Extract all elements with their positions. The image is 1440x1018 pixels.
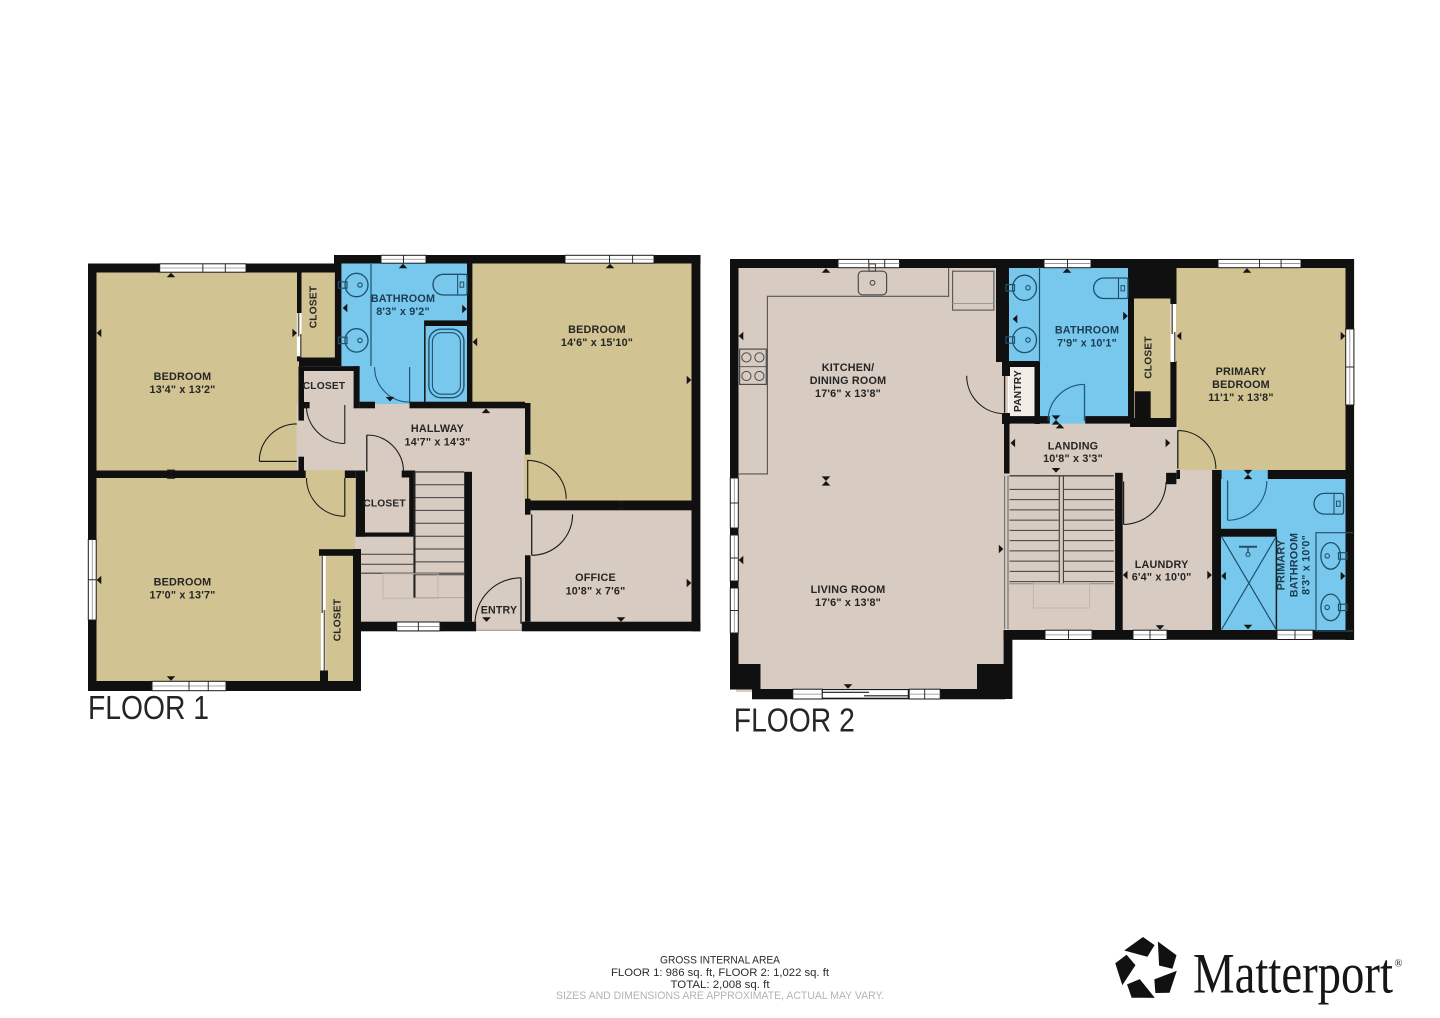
svg-text:17'0" x 13'7": 17'0" x 13'7" xyxy=(149,590,215,602)
svg-text:BEDROOM: BEDROOM xyxy=(154,577,212,589)
svg-text:DINING ROOM: DINING ROOM xyxy=(810,375,887,387)
svg-text:Matterport: Matterport xyxy=(1193,943,1393,1006)
svg-text:ENTRY: ENTRY xyxy=(481,605,518,617)
svg-text:10'8" x 7'6": 10'8" x 7'6" xyxy=(566,586,626,598)
svg-text:BEDROOM: BEDROOM xyxy=(1212,379,1270,391)
svg-text:GROSS INTERNAL AREA: GROSS INTERNAL AREA xyxy=(660,955,780,967)
svg-text:CLOSET: CLOSET xyxy=(303,381,346,392)
svg-text:BATHROOM: BATHROOM xyxy=(1289,533,1301,597)
svg-text:17'6" x 13'8": 17'6" x 13'8" xyxy=(815,597,881,609)
svg-text:FLOOR 1: 986 sq. ft, FLOOR 2:: FLOOR 1: 986 sq. ft, FLOOR 2: 1,022 sq. … xyxy=(611,967,830,979)
svg-text:LAUNDRY: LAUNDRY xyxy=(1135,559,1189,571)
svg-text:PRIMARY: PRIMARY xyxy=(1276,539,1288,590)
svg-text:BATHROOM: BATHROOM xyxy=(1055,325,1119,337)
svg-text:CLOSET: CLOSET xyxy=(309,285,320,328)
svg-text:FLOOR 1: FLOOR 1 xyxy=(88,689,209,726)
svg-text:KITCHEN/: KITCHEN/ xyxy=(822,362,875,374)
svg-text:CLOSET: CLOSET xyxy=(332,598,343,641)
svg-text:7'9" x 10'1": 7'9" x 10'1" xyxy=(1057,338,1117,350)
svg-text:CLOSET: CLOSET xyxy=(363,499,406,510)
svg-text:11'1" x 13'8": 11'1" x 13'8" xyxy=(1208,392,1273,404)
svg-text:6'4" x 10'0": 6'4" x 10'0" xyxy=(1132,572,1192,584)
svg-text:CLOSET: CLOSET xyxy=(1143,336,1154,379)
svg-text:PANTRY: PANTRY xyxy=(1013,370,1024,412)
svg-text:8'3" x 9'2": 8'3" x 9'2" xyxy=(376,306,430,318)
svg-text:BEDROOM: BEDROOM xyxy=(154,371,212,383)
svg-text:13'4" x 13'2": 13'4" x 13'2" xyxy=(149,384,215,396)
svg-text:BEDROOM: BEDROOM xyxy=(568,324,626,336)
svg-text:17'6" x 13'8": 17'6" x 13'8" xyxy=(815,388,881,400)
svg-text:10'8" x 3'3": 10'8" x 3'3" xyxy=(1043,453,1103,465)
svg-text:BATHROOM: BATHROOM xyxy=(371,293,435,305)
svg-text:HALLWAY: HALLWAY xyxy=(411,423,465,435)
svg-text:LANDING: LANDING xyxy=(1048,441,1099,453)
svg-text:SIZES AND DIMENSIONS ARE APPRO: SIZES AND DIMENSIONS ARE APPROXIMATE, AC… xyxy=(556,990,884,1002)
svg-text:14'6" x 15'10": 14'6" x 15'10" xyxy=(561,337,633,349)
svg-text:FLOOR 2: FLOOR 2 xyxy=(734,702,855,739)
svg-text:®: ® xyxy=(1395,959,1403,970)
svg-text:OFFICE: OFFICE xyxy=(575,572,616,584)
svg-text:14'7" x 14'3": 14'7" x 14'3" xyxy=(404,437,470,449)
svg-text:PRIMARY: PRIMARY xyxy=(1216,366,1267,378)
svg-text:LIVING ROOM: LIVING ROOM xyxy=(811,584,886,596)
svg-text:8'3" x 10'0": 8'3" x 10'0" xyxy=(1301,535,1313,595)
